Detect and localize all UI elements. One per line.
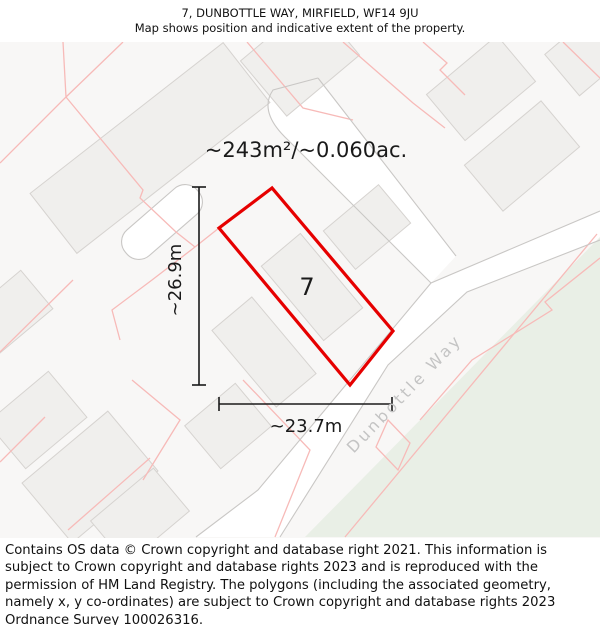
- map-canvas: ~243m²/~0.060ac. 7 ~26.9m ~23.7m Dunbott…: [0, 42, 600, 538]
- page-title: 7, DUNBOTTLE WAY, MIRFIELD, WF14 9JU: [0, 0, 600, 21]
- area-label: ~243m²/~0.060ac.: [205, 138, 407, 162]
- map-svg: ~243m²/~0.060ac. 7 ~26.9m ~23.7m Dunbott…: [0, 42, 600, 538]
- header: 7, DUNBOTTLE WAY, MIRFIELD, WF14 9JU Map…: [0, 0, 600, 42]
- footer: Contains OS data © Crown copyright and d…: [0, 538, 600, 625]
- title-plan-page: 7, DUNBOTTLE WAY, MIRFIELD, WF14 9JU Map…: [0, 0, 600, 625]
- plot-number-label: 7: [299, 273, 314, 301]
- copyright-text: Contains OS data © Crown copyright and d…: [0, 538, 600, 625]
- dimension-vertical-label: ~26.9m: [165, 244, 186, 317]
- page-subtitle: Map shows position and indicative extent…: [0, 21, 600, 36]
- dimension-horizontal-label: ~23.7m: [270, 416, 343, 437]
